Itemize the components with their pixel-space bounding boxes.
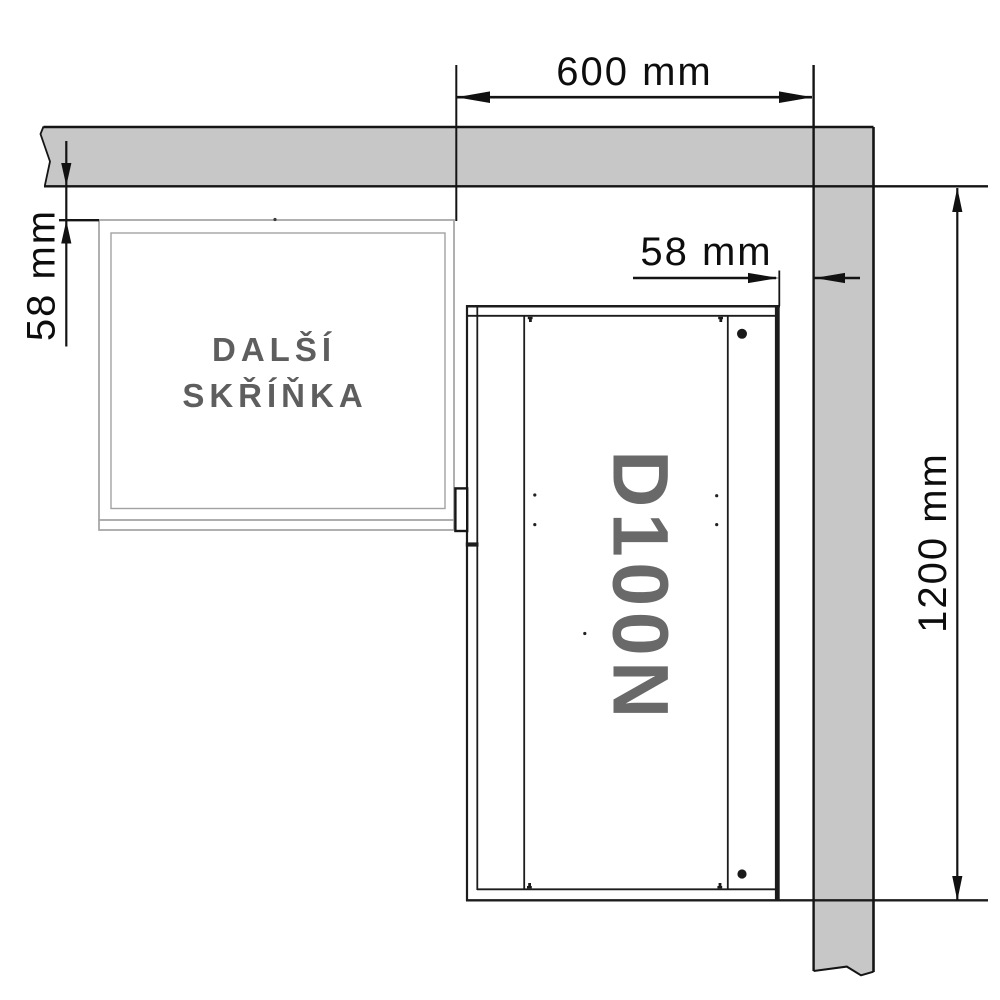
svg-text:600 mm: 600 mm xyxy=(556,50,713,94)
svg-text:DALŠÍ: DALŠÍ xyxy=(212,330,336,368)
svg-text:SKŘÍŇKA: SKŘÍŇKA xyxy=(182,377,367,414)
svg-text:58 mm: 58 mm xyxy=(640,230,772,274)
svg-text:1200 mm: 1200 mm xyxy=(911,452,955,633)
svg-text:58 mm: 58 mm xyxy=(20,209,64,341)
svg-text:D100N: D100N xyxy=(597,450,686,723)
